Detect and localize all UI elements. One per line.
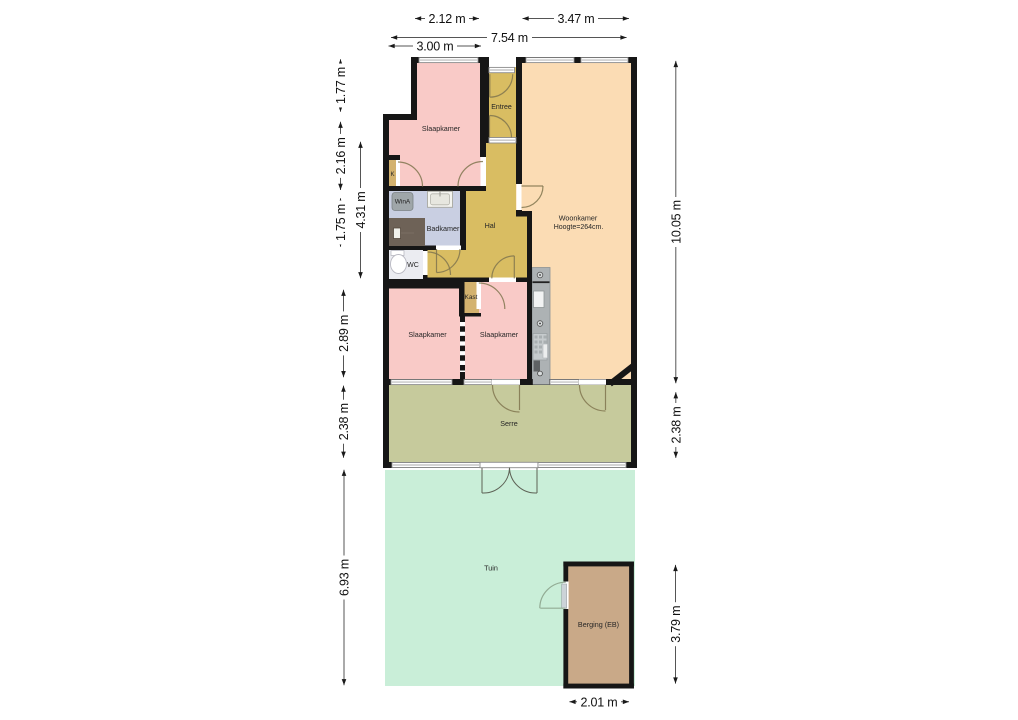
svg-text:2.38 m: 2.38 m [670, 406, 684, 443]
svg-text:4.31 m: 4.31 m [354, 191, 368, 228]
svg-text:Hal: Hal [485, 221, 496, 230]
svg-text:3.47 m: 3.47 m [557, 12, 594, 26]
svg-text:Kast: Kast [464, 294, 477, 301]
svg-text:Hoogte=264cm.: Hoogte=264cm. [554, 224, 604, 231]
svg-text:Slaapkamer: Slaapkamer [408, 330, 447, 339]
svg-text:7.54 m: 7.54 m [491, 31, 528, 45]
svg-text:WinA: WinA [395, 199, 411, 206]
svg-text:WC: WC [407, 262, 419, 269]
svg-text:1.77 m: 1.77 m [334, 67, 348, 104]
svg-text:Entree: Entree [491, 104, 512, 111]
svg-text:2.12 m: 2.12 m [428, 12, 465, 26]
svg-text:3.00 m: 3.00 m [416, 40, 453, 54]
svg-text:Slaapkamer: Slaapkamer [422, 124, 461, 133]
svg-text:1.75 m: 1.75 m [334, 204, 348, 241]
svg-text:2.01 m: 2.01 m [580, 696, 617, 710]
svg-text:Berging (EB): Berging (EB) [578, 620, 619, 629]
svg-text:Serre: Serre [500, 419, 518, 428]
svg-text:Slaapkamer: Slaapkamer [480, 330, 519, 339]
svg-text:6.93 m: 6.93 m [338, 559, 352, 596]
svg-text:2.89 m: 2.89 m [337, 315, 351, 352]
svg-text:K: K [390, 172, 394, 178]
svg-text:Tuin: Tuin [484, 564, 498, 573]
svg-text:2.38 m: 2.38 m [337, 403, 351, 440]
svg-text:Woonkamer: Woonkamer [559, 214, 598, 223]
svg-text:Badkamer: Badkamer [427, 224, 460, 233]
svg-text:10.05 m: 10.05 m [670, 200, 684, 244]
svg-text:3.79 m: 3.79 m [669, 606, 683, 643]
svg-text:2.16 m: 2.16 m [334, 137, 348, 174]
